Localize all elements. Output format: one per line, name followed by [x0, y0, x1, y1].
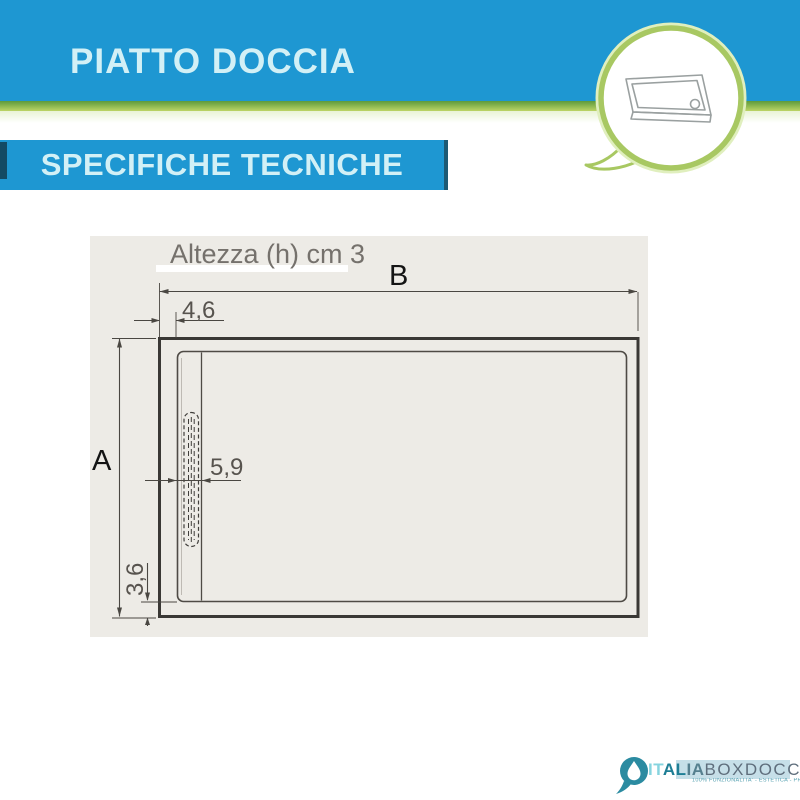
dim-a-label: A — [92, 445, 111, 478]
page: PIATTO DOCCIA SPECIFICHE TECNICHE — [0, 0, 800, 800]
brand-part-al: AL — [663, 760, 687, 779]
diagram-panel — [90, 236, 648, 637]
brand-part-box: BOXDOCCIA — [705, 760, 800, 779]
page-title: PIATTO DOCCIA — [70, 42, 356, 82]
brand-part-it: IT — [648, 760, 663, 779]
dim-b-label: B — [389, 260, 408, 293]
brand-tagline: 100% FUNZIONALITA' - ESTETICA - PRATICIT… — [692, 778, 800, 784]
section-bar: SPECIFICHE TECNICHE — [0, 140, 448, 190]
divider-fade — [0, 111, 800, 123]
brand-part-ia: IA — [687, 760, 705, 779]
dim-channel-label: 5,9 — [210, 454, 243, 482]
brand-name: ITALIABOXDOCCIA — [648, 760, 800, 780]
brand-logo: ITALIABOXDOCCIA 100% FUNZIONALITA' - EST… — [612, 753, 798, 795]
green-divider — [0, 101, 800, 111]
section-title: SPECIFICHE TECNICHE — [41, 147, 404, 183]
dim-edge-label: 4,6 — [182, 297, 215, 325]
scan-artifact — [0, 142, 7, 179]
dim-bottom-label: 3,6 — [122, 563, 150, 596]
water-drop-icon — [616, 755, 652, 795]
height-note: Altezza (h) cm 3 — [170, 239, 365, 270]
